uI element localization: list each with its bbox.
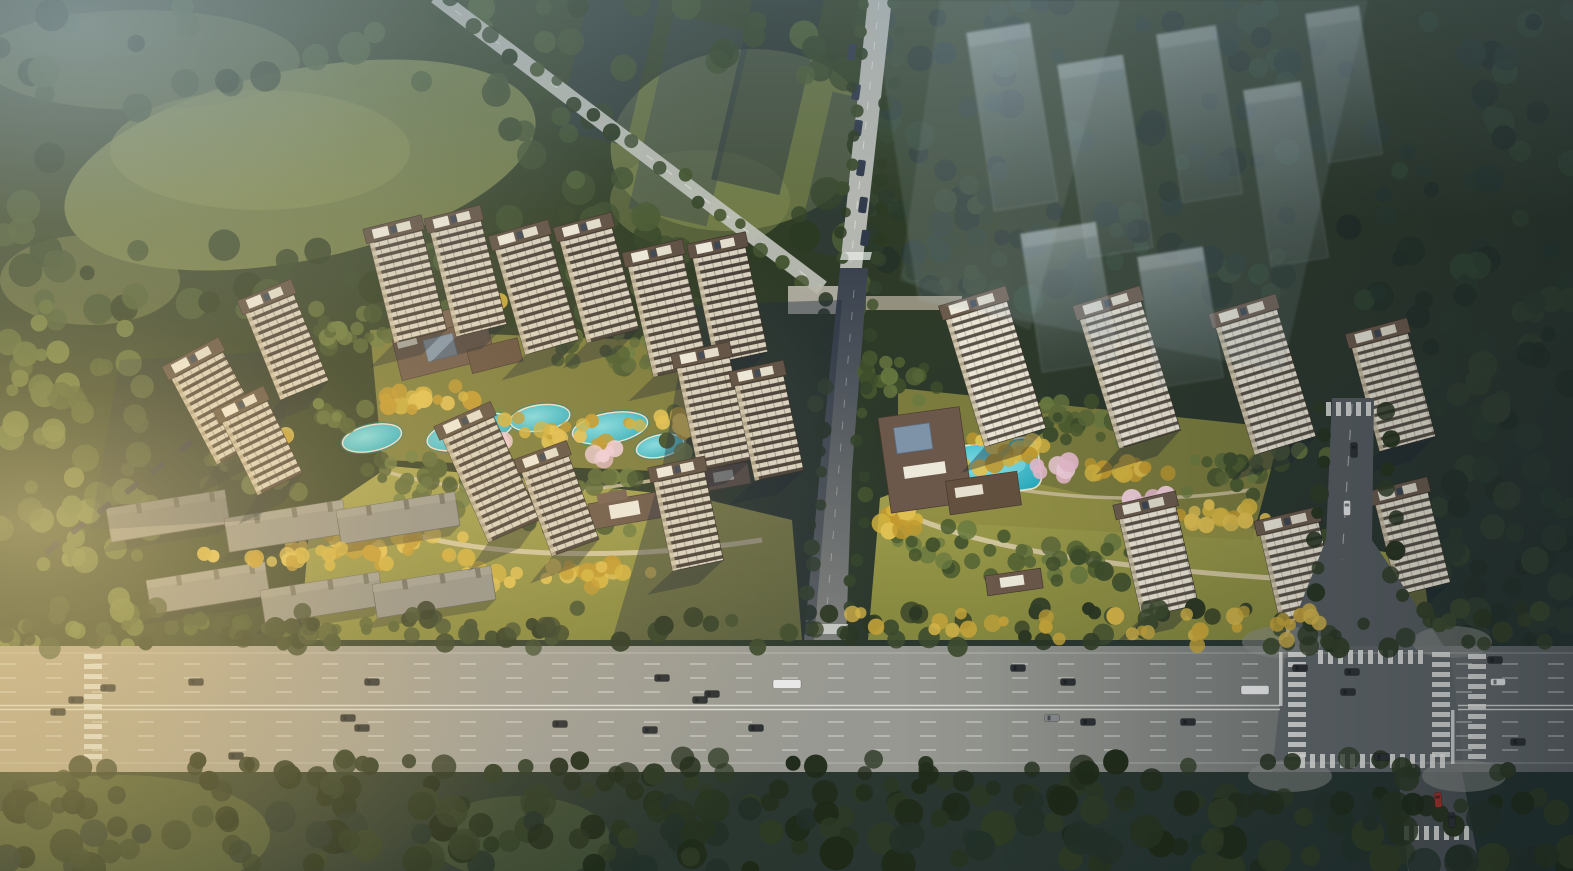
atmosphere-lighting: [0, 0, 1573, 871]
shade-east: [0, 0, 1573, 871]
aerial-render: [0, 0, 1573, 871]
render-canvas: [0, 0, 1573, 871]
